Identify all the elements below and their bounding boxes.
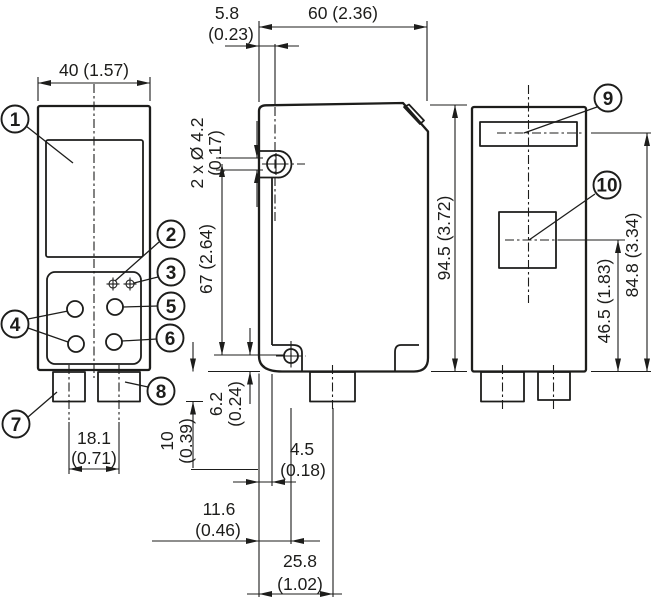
adjuster-knob [107,299,123,315]
leader-3 [134,277,158,283]
callout-label-5: 5 [166,297,177,318]
arrowhead [452,359,458,372]
arrowhead [137,80,150,86]
leader-2 [115,242,159,281]
arrowhead [414,24,427,30]
callout-label-3: 3 [166,263,177,284]
arrowhead [259,591,272,597]
arrowhead [190,402,196,415]
dim-text-mounting-holes-mm: 2 x Ø 4.2 [187,117,207,188]
adjuster-knob [67,301,83,317]
dim-text-hole-spacing: 67 (2.64) [196,224,216,294]
callout-label-9: 9 [603,89,614,110]
dim-text-screw-to-bottom-mm: 6.2 [206,392,226,416]
dim-text-front-to-connector-mm: 25.8 [283,551,317,571]
arrowhead [644,359,650,372]
foot-right [395,345,419,372]
dim-text-window-to-bottom: 46.5 (1.83) [594,259,614,344]
leader-4b [28,328,68,342]
leader-7 [28,392,57,417]
dimension-texts: 40 (1.57) 5.8 (0.23) 60 (2.36) 2 x Ø 4.2… [59,3,642,594]
dim-text-front-to-connector-inch: (1.02) [277,574,323,594]
arrowhead [246,538,259,544]
dim-text-connector-length-mm: 10 [157,431,177,451]
mounting-screw-bottom [283,348,300,365]
arrowhead [291,538,304,544]
dim-text-front-to-screw-mm: 11.6 [203,499,236,519]
arrowhead [615,359,621,372]
dim-text-depth: 60 (2.36) [308,3,378,23]
side-view [259,103,428,402]
arrowhead [247,342,253,355]
dim-text-screw-to-bottom-inch: (0.24) [225,381,245,427]
adjuster-knob [106,334,122,350]
callout-label-7: 7 [11,415,22,436]
leader-4a [28,311,68,319]
arrowhead [219,342,225,355]
adjuster-knob [68,336,84,352]
leader-5 [123,306,158,307]
housing-outline [259,103,428,372]
dim-text-front-width: 40 (1.57) [59,60,129,80]
dim-text-hole-offset-inch: (0.23) [208,24,254,44]
dim-text-hole-offset-mm: 5.8 [215,3,239,23]
arrowhead [246,479,259,485]
leader-6 [122,339,157,341]
callout-label-6: 6 [165,329,176,350]
dimensional-drawing: 1 2 3 4 5 6 7 8 9 10 40 (1.57) 5.8 (0.23… [0,0,651,600]
arrowhead [38,80,51,86]
callout-label-8: 8 [156,382,167,403]
arrowhead [275,43,288,49]
dim-text-connector-spacing-mm: 18.1 [77,428,111,448]
arrowhead [190,359,196,372]
dim-text-front-to-lower-edge-mm: 4.5 [290,439,314,459]
dim-text-indicator-to-bottom: 84.8 (3.34) [622,213,642,298]
dim-text-height: 94.5 (3.72) [434,196,454,281]
dim-text-front-to-screw-inch: (0.46) [195,520,241,540]
drawing-canvas: 1 2 3 4 5 6 7 8 9 10 40 (1.57) 5.8 (0.23… [0,0,651,600]
arrowhead [247,372,253,385]
arrowhead [644,133,650,146]
leader-1 [26,126,73,163]
arrowhead [615,240,621,253]
dim-text-front-to-lower-edge-inch: (0.18) [280,460,326,480]
arrowhead [452,105,458,118]
leader-8 [125,382,148,387]
arrowhead [259,24,272,30]
callout-label-2: 2 [166,225,177,246]
dim-text-connector-length-inch: (0.39) [176,418,196,464]
dim-text-mounting-holes-inch: (0.17) [205,130,225,176]
dim-text-connector-spacing-inch: (0.71) [71,448,117,468]
callout-label-10: 10 [596,176,617,197]
callout-label-4: 4 [10,315,21,336]
mounting-screw-top [265,153,287,175]
led-indicator-right [124,278,137,291]
callout-label-1: 1 [10,110,21,131]
